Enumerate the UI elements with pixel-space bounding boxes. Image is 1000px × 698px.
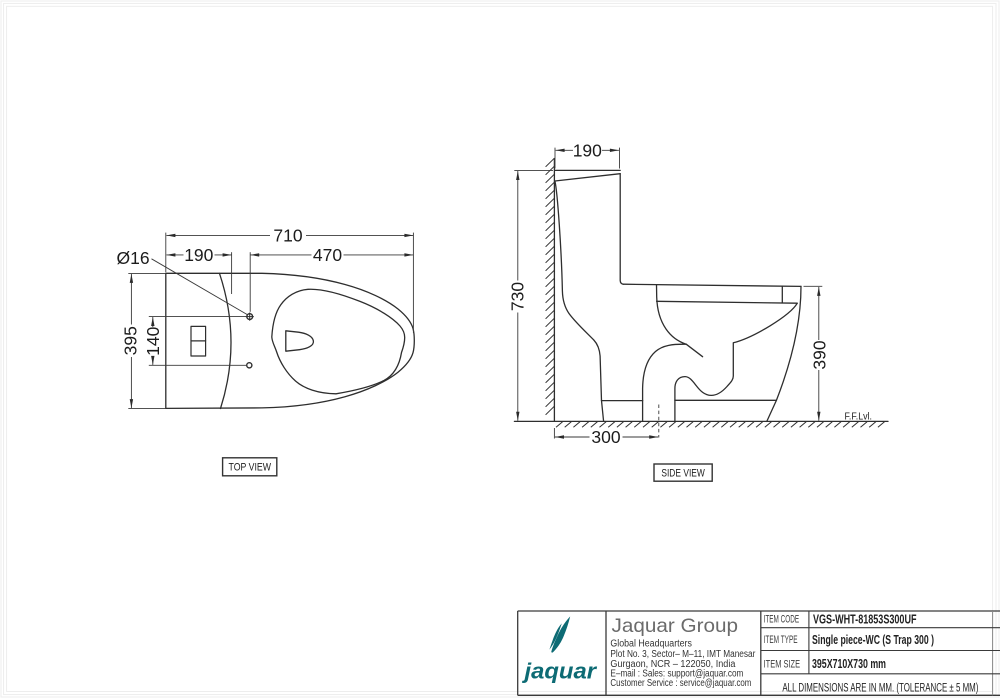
svg-text:Jaquar Group: Jaquar Group <box>612 615 739 637</box>
svg-text:140: 140 <box>143 326 163 355</box>
svg-text:jaquar: jaquar <box>521 659 597 684</box>
svg-text:Customer Service : service@jaq: Customer Service : service@jaquar.com <box>610 678 751 689</box>
svg-text:ITEM SIZE: ITEM SIZE <box>764 659 801 671</box>
svg-text:710: 710 <box>273 225 302 245</box>
svg-text:300: 300 <box>591 427 620 447</box>
svg-text:ITEM CODE: ITEM CODE <box>764 614 800 626</box>
svg-text:VGS-WHT-81853S300UF: VGS-WHT-81853S300UF <box>813 613 917 627</box>
svg-text:ITEM TYPE: ITEM TYPE <box>764 634 798 646</box>
svg-text:ALL DIMENSIONS ARE IN MM. (TOL: ALL DIMENSIONS ARE IN MM. (TOLERANCE ± 5… <box>782 682 978 694</box>
svg-text:190: 190 <box>184 245 213 265</box>
svg-text:Ø16: Ø16 <box>117 248 150 268</box>
svg-text:395X710X730 mm: 395X710X730 mm <box>812 657 886 671</box>
svg-text:190: 190 <box>573 140 602 160</box>
svg-text:SIDE VIEW: SIDE VIEW <box>661 467 705 479</box>
svg-text:Single piece-WC (S Trap 300 ): Single piece-WC (S Trap 300 ) <box>812 633 934 647</box>
svg-text:F.F.Lvl.: F.F.Lvl. <box>845 412 873 423</box>
svg-text:390: 390 <box>809 340 829 369</box>
svg-text:470: 470 <box>313 245 342 265</box>
svg-text:730: 730 <box>507 282 527 311</box>
svg-text:Global Headquarters: Global Headquarters <box>610 638 692 649</box>
svg-text:TOP VIEW: TOP VIEW <box>229 461 272 473</box>
svg-text:395: 395 <box>120 326 140 355</box>
